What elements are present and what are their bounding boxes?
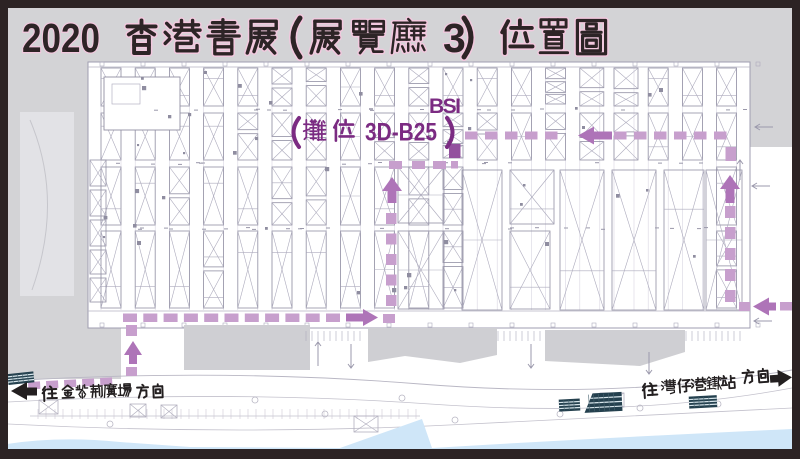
svg-text:2020: 2020 bbox=[22, 15, 100, 61]
svg-text:BSI: BSI bbox=[429, 95, 461, 118]
svg-text:3D-B25: 3D-B25 bbox=[365, 119, 437, 147]
